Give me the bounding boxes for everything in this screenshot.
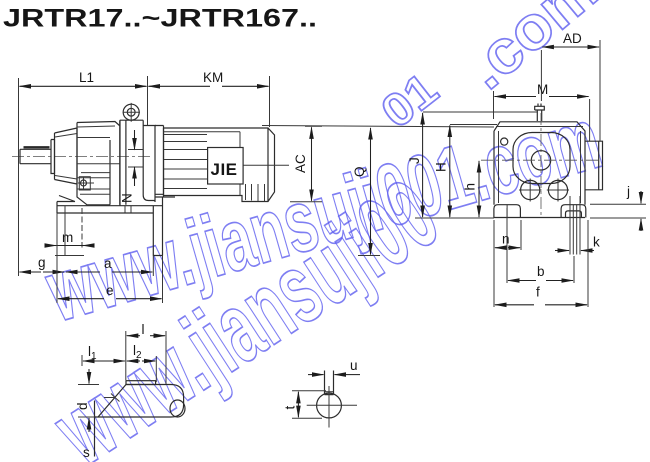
svg-text:l: l [142,322,145,337]
svg-text:a: a [104,256,112,271]
svg-text:h: h [463,183,478,191]
svg-text:e: e [106,283,114,298]
svg-text:k: k [593,235,600,250]
svg-text:m: m [62,230,73,245]
svg-text:L1: L1 [79,70,94,85]
svg-text:N: N [120,193,135,203]
svg-text:n: n [502,232,510,247]
svg-text:t: t [283,406,298,410]
svg-text:AD: AD [563,31,582,46]
svg-text:JRTR17..~JRTR167..: JRTR17..~JRTR167.. [3,5,317,33]
svg-text:s: s [83,445,90,460]
svg-text:AC: AC [293,154,308,173]
svg-text:.com: .com [453,0,612,103]
svg-text:H: H [434,162,449,172]
svg-text:Q: Q [352,166,367,177]
svg-text:JIE: JIE [211,160,238,179]
svg-text:b: b [537,264,545,279]
svg-text:M: M [537,82,548,97]
svg-text:f: f [536,285,540,300]
svg-text:j: j [626,184,630,199]
svg-text:d: d [75,402,90,410]
svg-text:KM: KM [203,70,223,85]
svg-text:u: u [350,358,358,373]
svg-text:J: J [407,157,422,164]
svg-text:g: g [38,255,46,270]
